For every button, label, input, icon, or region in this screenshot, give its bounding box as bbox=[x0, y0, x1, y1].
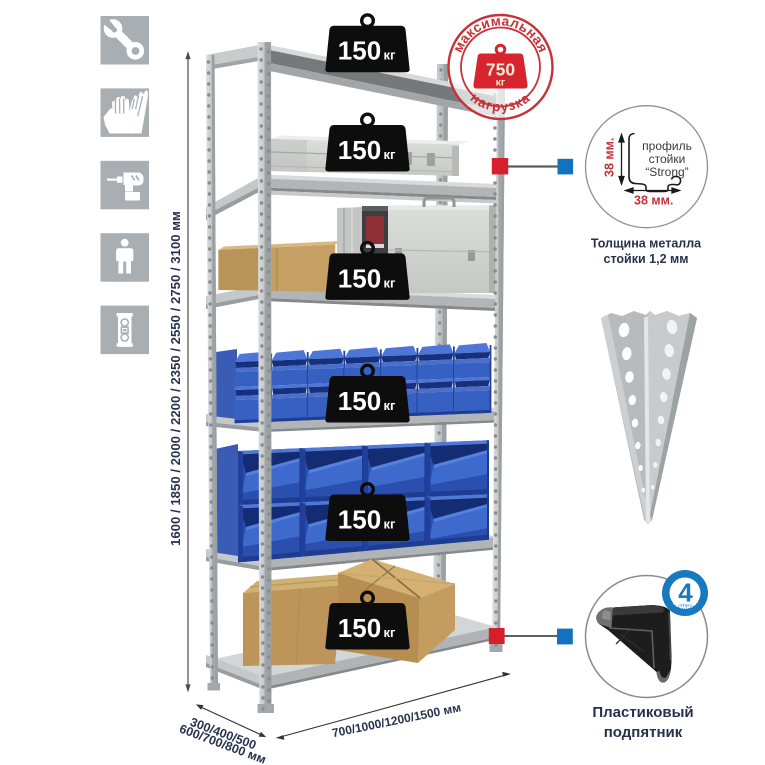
svg-text:кг: кг bbox=[384, 517, 397, 532]
svg-text:кг: кг bbox=[384, 275, 397, 290]
svg-text:38 мм.: 38 мм. bbox=[634, 194, 673, 208]
svg-text:кг: кг bbox=[384, 625, 397, 640]
svg-text:кг: кг bbox=[384, 147, 397, 162]
svg-text:38 мм.: 38 мм. bbox=[603, 138, 617, 177]
svg-text:кг: кг bbox=[384, 48, 397, 63]
svg-text:150: 150 bbox=[338, 135, 381, 165]
svg-text:стойки: стойки bbox=[649, 152, 686, 166]
svg-text:Толщина металла: Толщина металла bbox=[591, 237, 702, 251]
svg-text:кг: кг bbox=[496, 77, 506, 89]
svg-text:150: 150 bbox=[338, 36, 381, 66]
svg-text:1600 / 1850 / 2000 / 2200 / 23: 1600 / 1850 / 2000 / 2200 / 2350 / 2550 … bbox=[168, 211, 183, 546]
svg-text:150: 150 bbox=[338, 263, 381, 293]
svg-text:150: 150 bbox=[338, 505, 381, 535]
svg-text:150: 150 bbox=[338, 386, 381, 416]
svg-text:стойки 1,2 мм: стойки 1,2 мм bbox=[604, 252, 689, 266]
svg-text:150: 150 bbox=[338, 613, 381, 643]
svg-text:профиль: профиль bbox=[642, 139, 692, 153]
svg-text:“Strong”: “Strong” bbox=[645, 165, 688, 179]
svg-text:кг: кг bbox=[384, 398, 397, 413]
svg-text:подпятник: подпятник bbox=[604, 724, 683, 741]
svg-text:Пластиковый: Пластиковый bbox=[592, 704, 693, 721]
